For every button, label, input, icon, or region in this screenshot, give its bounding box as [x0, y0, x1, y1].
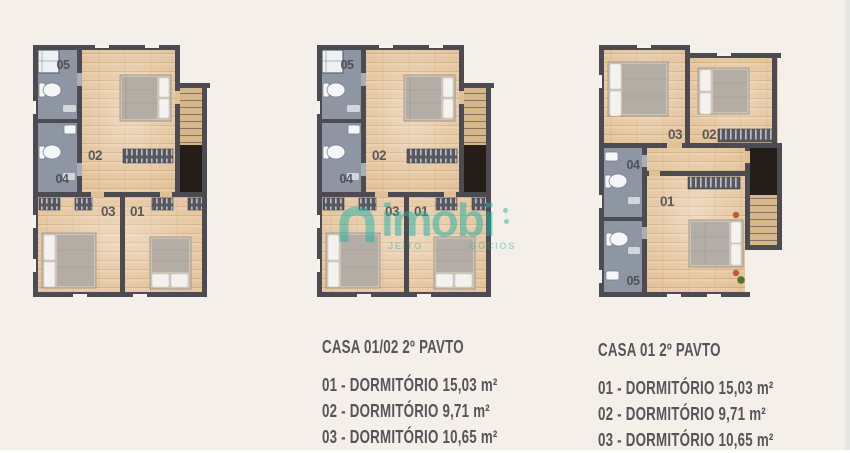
wardrobe	[359, 198, 376, 210]
wardrobe	[123, 149, 173, 163]
legend-item-dormitorio-02: 02 - DORMITÓRIO 9,71 m²	[322, 398, 498, 424]
wardrobe	[75, 198, 92, 210]
bed-room-02	[120, 75, 171, 121]
stairs-void	[178, 145, 204, 197]
room-label-02: 02	[88, 148, 102, 163]
wardrobe	[436, 198, 457, 210]
room-label-03: 03	[101, 204, 116, 219]
floor-plan-casa-01-02-center: 05 04 02 03 01	[317, 45, 495, 298]
floor-plan-casa-01-02-left: 05 04 02 03 01	[33, 45, 211, 298]
legend-title: CASA 01/02 2º PAVTO	[322, 337, 498, 357]
room-label-03: 03	[385, 204, 400, 219]
bed-room-03	[608, 62, 668, 116]
room-label-05: 05	[57, 58, 70, 72]
legend-item-dormitorio-01: 01 - DORMITÓRIO 15,03 m²	[598, 375, 774, 401]
bed-room-01	[150, 237, 191, 289]
staircase	[750, 195, 778, 245]
room-label-02: 02	[372, 148, 386, 163]
room-label-01: 01	[130, 204, 145, 219]
wardrobe	[323, 198, 344, 210]
legend-item-dormitorio-01: 01 - DORMITÓRIO 15,03 m²	[322, 372, 498, 398]
room-label-04: 04	[56, 172, 69, 186]
staircase	[178, 86, 204, 145]
room-label-04: 04	[340, 172, 353, 186]
room-label-04: 04	[627, 158, 640, 172]
legend-casa-01: CASA 01 2º PAVTO 01 - DORMITÓRIO 15,03 m…	[598, 340, 835, 453]
bed-room-03	[326, 233, 380, 288]
wardrobe	[407, 149, 457, 163]
decor-plant	[737, 276, 745, 284]
legend-title: CASA 01 2º PAVTO	[598, 340, 774, 360]
sink-icon	[348, 125, 360, 134]
wardrobe	[688, 177, 740, 189]
bath-mat	[628, 247, 640, 254]
sink-icon	[605, 152, 618, 161]
stairs-void	[462, 145, 488, 197]
room-label-01: 01	[660, 194, 675, 209]
legend-item-dormitorio-03: 03 - DORMITÓRIO 10,65 m²	[598, 427, 774, 453]
legend-casa-01-02: CASA 01/02 2º PAVTO 01 - DORMITÓRIO 15,0…	[322, 337, 559, 450]
wardrobe	[152, 198, 173, 210]
room-label-03: 03	[668, 127, 683, 142]
room-label-05: 05	[627, 274, 640, 288]
bed-room-02	[698, 68, 749, 114]
sink-icon	[606, 271, 619, 280]
room-label-02: 02	[702, 127, 716, 142]
bed-room-03	[42, 233, 96, 288]
bed-room-02	[404, 75, 455, 121]
bath-mat	[63, 105, 76, 112]
bath-mat	[628, 197, 640, 204]
page-edge-strip	[844, 0, 850, 450]
room-label-01: 01	[414, 204, 429, 219]
wardrobe	[718, 129, 773, 142]
bath-mat	[347, 105, 360, 112]
floor-plan-sheet: 05 04 02 03 01	[0, 0, 850, 450]
sink-icon	[64, 125, 76, 134]
staircase	[462, 86, 488, 145]
legend-item-dormitorio-03: 03 - DORMITÓRIO 10,65 m²	[322, 424, 498, 450]
wardrobe	[39, 198, 60, 210]
watermark-dot	[503, 208, 508, 213]
room-label-05: 05	[341, 58, 354, 72]
watermark-dot	[504, 219, 509, 224]
floor-plan-casa-01: 03 02 04 01 05	[597, 45, 787, 298]
decor-lamp	[733, 212, 739, 218]
bed-room-01	[434, 237, 475, 289]
decor-lamp	[733, 270, 739, 276]
legend-item-dormitorio-02: 02 - DORMITÓRIO 9,71 m²	[598, 401, 774, 427]
stairs-void	[750, 145, 778, 195]
